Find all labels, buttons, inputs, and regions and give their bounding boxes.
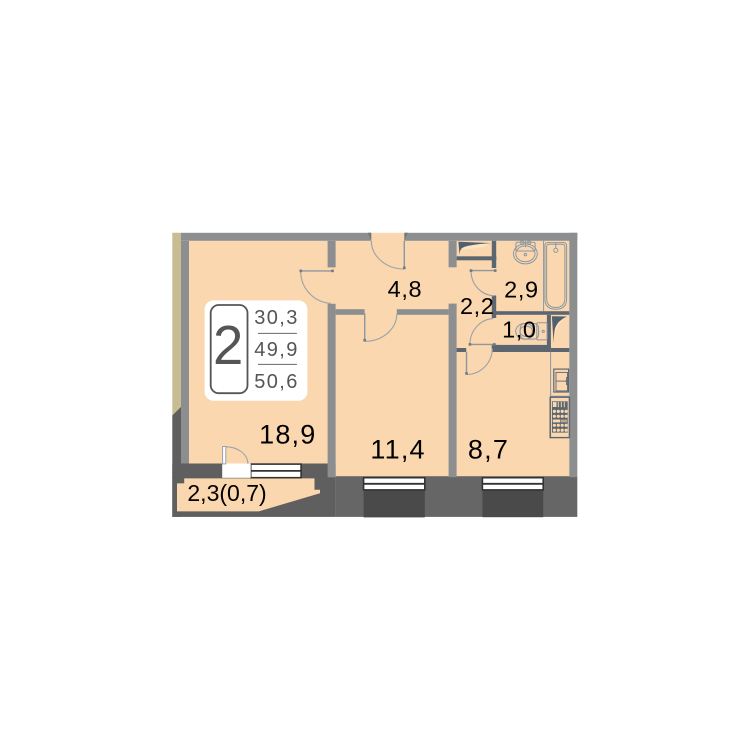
svg-text:49,9: 49,9	[254, 339, 299, 361]
svg-text:30,3: 30,3	[254, 307, 299, 329]
svg-text:11,4: 11,4	[370, 435, 425, 465]
svg-text:1,0: 1,0	[502, 317, 536, 343]
svg-text:50,6: 50,6	[254, 371, 299, 393]
svg-text:18,9: 18,9	[259, 419, 316, 449]
svg-text:2: 2	[213, 315, 243, 376]
svg-text:2,9: 2,9	[504, 277, 538, 303]
svg-text:2,3(0,7): 2,3(0,7)	[187, 480, 266, 506]
svg-text:4,8: 4,8	[388, 276, 422, 302]
svg-text:2,2: 2,2	[460, 293, 494, 319]
svg-text:8,7: 8,7	[468, 435, 509, 465]
